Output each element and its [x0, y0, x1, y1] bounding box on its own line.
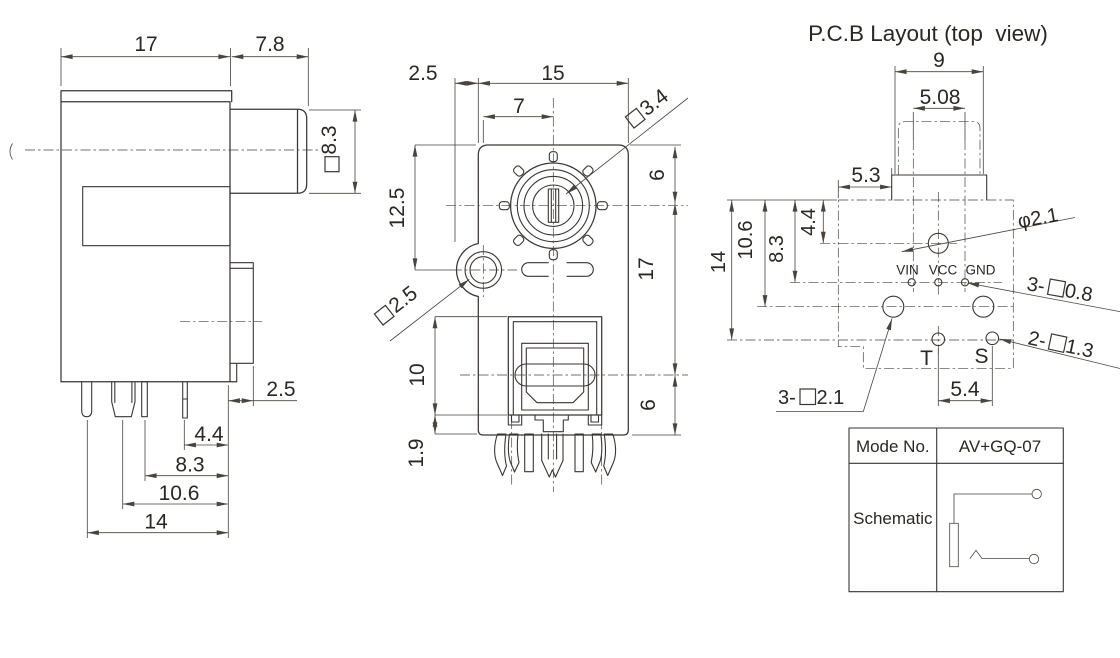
front-claw-right — [591, 434, 615, 476]
front-optical-connector — [508, 317, 601, 432]
pcb-label-phi21: φ2.1 — [1016, 204, 1060, 233]
side-dim-25-label: 2.5 — [266, 378, 295, 401]
front-dim-7-label: 7 — [513, 95, 525, 118]
optical-stem — [535, 415, 568, 432]
side-pin-thin-1 — [142, 382, 148, 417]
side-inner-rect — [83, 187, 230, 246]
pcb-dim-phi21-label: φ2.1 — [1016, 204, 1060, 233]
pcb-pad-t-label: T — [920, 347, 933, 370]
front-dim-125-label: 12.5 — [386, 188, 409, 229]
square-symbol-21 — [800, 389, 816, 405]
pcb-title: P.C.B Layout (top view) — [808, 21, 1048, 46]
schematic-sleeve-bar — [950, 523, 959, 566]
table-mode-value: AV+GQ-07 — [959, 437, 1041, 456]
pcb-dim-44-label: 4.4 — [798, 208, 820, 236]
pcb-label-13: 2- 1.3 — [1026, 327, 1095, 362]
spec-table: Mode No. AV+GQ-07 Schematic — [849, 428, 1063, 592]
square-symbol-83 — [325, 157, 339, 172]
pcb-pad-vcc-label: VCC — [929, 263, 958, 278]
schematic-terminal-bottom — [1029, 554, 1038, 563]
pcb-ext-508 — [913, 112, 965, 140]
pcb-leader-21-prefix: 3- — [778, 387, 796, 409]
side-dim-14-label: 14 — [144, 511, 168, 534]
pcb-main-outline — [838, 200, 1013, 368]
side-pin-thin-2 — [183, 382, 188, 418]
schematic-sleeve-wire — [954, 494, 1032, 523]
pcb-hole-s — [986, 332, 999, 345]
pcb-leader-13-value: 1.3 — [1064, 335, 1096, 362]
front-dim-10-label: 10 — [406, 363, 429, 386]
pcb-dim-14-label: 14 — [708, 251, 730, 273]
front-leader-34 — [566, 98, 688, 194]
pcb-dim-53-label: 5.3 — [851, 164, 880, 187]
schematic-tip-contact — [970, 550, 1029, 558]
table-schematic-label: Schematic — [853, 509, 933, 528]
pcb-pad-vin-label: VIN — [896, 263, 919, 278]
front-slot-left — [522, 263, 549, 277]
side-dim-106-label: 10.6 — [159, 482, 200, 505]
side-dim-83b-label: 8.3 — [175, 454, 204, 477]
pcb-pad-gnd-label: GND — [966, 263, 996, 278]
pcb-leader-21-value: 2.1 — [817, 387, 845, 409]
optical-foot-left — [508, 415, 521, 425]
side-pin-round — [82, 382, 92, 417]
stray-arc-mark — [10, 144, 13, 160]
schematic-drawing — [950, 489, 1042, 566]
square-symbol-13 — [1048, 334, 1066, 352]
side-dim-78-label: 7.8 — [255, 33, 284, 56]
front-dim-19-label: 1.9 — [405, 438, 428, 467]
side-view: 17 7.8 8.3 2.5 4.4 8.3 10.6 14 — [10, 33, 361, 538]
front-dim-6bot-label: 6 — [637, 399, 660, 411]
side-pin-blade — [112, 382, 135, 417]
pcb-leader-13 — [1000, 339, 1120, 369]
front-label-25sq: 2.5 — [371, 282, 422, 329]
pcb-dim-83-label: 8.3 — [766, 235, 788, 263]
side-body-outline — [61, 91, 237, 382]
front-view: 2.5 15 7 12.5 6 17 6 10 1.9 3.4 2.5 — [371, 62, 688, 492]
front-slot-right — [567, 263, 593, 277]
side-dim-44-label: 4.4 — [194, 423, 224, 446]
pcb-dim-508-label: 5.08 — [920, 86, 961, 109]
front-ext-top — [455, 78, 628, 242]
side-protrusion — [230, 263, 253, 382]
pcb-tab-outline — [898, 122, 980, 175]
pcb-tab-base — [892, 175, 987, 200]
front-dim-17-label: 17 — [635, 257, 658, 280]
front-dim-25-label: 2.5 — [408, 62, 437, 85]
side-dim-83sq-label: 8.3 — [318, 125, 341, 154]
front-dim-6top-label: 6 — [646, 169, 669, 181]
front-centerline-small-hole — [452, 245, 517, 297]
pcb-dim-106-label: 10.6 — [735, 221, 757, 260]
front-pin-center — [542, 434, 563, 477]
pcb-pad-s-label: S — [974, 345, 988, 368]
technical-drawing-page: 17 7.8 8.3 2.5 4.4 8.3 10.6 14 — [0, 0, 1120, 658]
front-ext-right — [630, 145, 681, 435]
side-barrel — [230, 109, 307, 193]
pcb-ext-9 — [895, 66, 983, 174]
front-pins — [495, 434, 616, 477]
front-ext-125 — [415, 145, 476, 270]
pcb-leader-08-prefix: 3- — [1025, 273, 1046, 298]
front-pin-thin-left — [525, 434, 534, 472]
front-dim-15-label: 15 — [541, 62, 564, 85]
pcb-dim-9-label: 9 — [933, 49, 945, 72]
table-mode-label: Mode No. — [856, 437, 930, 456]
pcb-label-08: 3- 0.8 — [1025, 273, 1094, 306]
side-dim-17-label: 17 — [134, 33, 157, 56]
front-pin-thin-right — [575, 434, 583, 472]
pcb-dim-54-label: 5.4 — [950, 378, 980, 401]
square-symbol-08 — [1048, 279, 1066, 297]
pcb-centerlines-vertical — [913, 140, 965, 354]
front-ext-optical — [435, 317, 507, 434]
front-label-34: 3.4 — [622, 84, 673, 131]
pcb-leader-08-value: 0.8 — [1063, 280, 1094, 306]
pcb-layout-view: P.C.B Layout (top view) VIN VCC GND T S … — [708, 21, 1120, 412]
optical-outer — [508, 317, 601, 415]
schematic-terminal-top — [1032, 489, 1041, 498]
drawing-canvas: 17 7.8 8.3 2.5 4.4 8.3 10.6 14 — [0, 0, 1120, 658]
pcb-leader-13-prefix: 2- — [1026, 327, 1048, 352]
pcb-label-21: 3- 2.1 — [776, 319, 892, 412]
optical-foot-right — [588, 415, 601, 425]
optical-aperture — [522, 343, 589, 410]
